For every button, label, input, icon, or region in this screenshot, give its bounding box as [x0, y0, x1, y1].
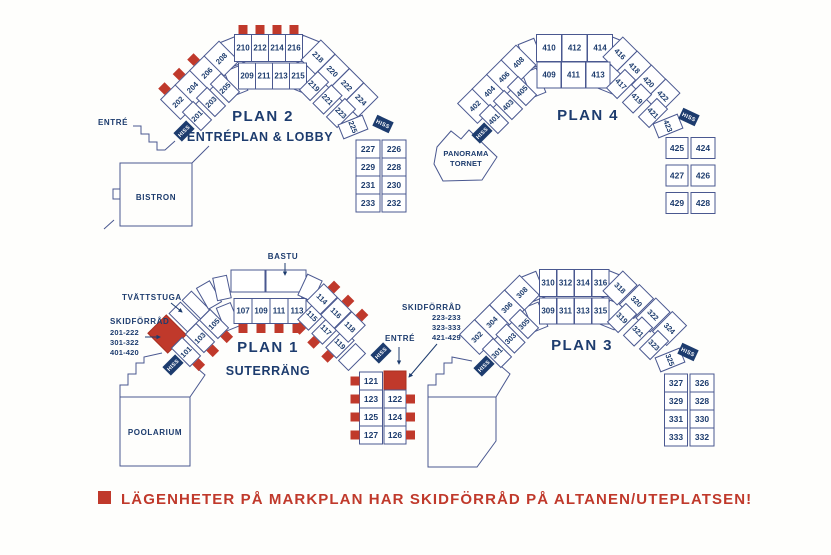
- room-429: 429: [666, 193, 688, 214]
- room-number: 226: [387, 144, 401, 154]
- room-number: 126: [388, 430, 402, 440]
- room-number: 411: [567, 71, 580, 80]
- room-211: 211: [256, 63, 273, 89]
- ski-storage-marker: [406, 413, 415, 422]
- skidforrad-right-range1: 223-233: [432, 313, 461, 322]
- room-number: 309: [541, 307, 555, 316]
- corridor-segment: [231, 270, 265, 292]
- room-number: 310: [541, 279, 555, 288]
- room-number: 330: [695, 414, 709, 424]
- room-212: 212: [252, 25, 269, 62]
- room-number: 316: [594, 279, 608, 288]
- ski-storage-marker: [239, 324, 248, 333]
- room-311: 311: [557, 298, 574, 324]
- plan1-title: PLAN 1: [237, 339, 299, 356]
- room-number: 333: [669, 432, 683, 442]
- room-121: 121: [351, 372, 383, 390]
- room-309: 309: [540, 298, 557, 324]
- bistron-label: BISTRON: [136, 193, 176, 202]
- room-number: 233: [361, 198, 375, 208]
- elevator-hiss: HISS: [679, 108, 699, 125]
- room-216: 216: [286, 25, 303, 62]
- room-312: 312: [557, 270, 574, 297]
- poolarium-label: POOLARIUM: [128, 428, 182, 437]
- room-number: 425: [670, 143, 684, 153]
- elevator-hiss: HISS: [163, 355, 183, 375]
- ski-storage-marker: [257, 324, 266, 333]
- room-number: 209: [240, 72, 254, 81]
- room-332: 332: [690, 428, 714, 446]
- room-315: 315: [592, 298, 609, 324]
- room-number: 213: [274, 72, 288, 81]
- room-425: 425: [666, 138, 688, 159]
- room-number: 426: [696, 170, 710, 180]
- room-111: 111: [270, 299, 288, 334]
- room-number: 127: [364, 430, 378, 440]
- ski-storage-marker: [239, 25, 248, 34]
- room-number: 122: [388, 394, 402, 404]
- plan2-entre-label: ENTRÉ: [98, 118, 128, 127]
- room-number: 329: [669, 396, 683, 406]
- room-313: 313: [575, 298, 592, 324]
- room-number: 232: [387, 198, 401, 208]
- corridor-segment: [266, 270, 306, 292]
- elevator-hiss: HISS: [474, 356, 494, 376]
- room-314: 314: [575, 270, 592, 297]
- elevator-hiss: HISS: [373, 115, 393, 132]
- tvattstuga-label: TVÄTTSTUGA: [122, 293, 182, 302]
- ski-storage-marker: [351, 377, 360, 386]
- plan3-rooms: 3023043063083103123143163183203223243013…: [460, 270, 714, 447]
- room-number: 412: [568, 44, 582, 53]
- ski-storage-marker: [406, 431, 415, 440]
- room-number: 414: [593, 44, 607, 53]
- room-number: 210: [236, 44, 250, 53]
- floor-plans-diagram: ENTRÉ BISTRON 20220420620821021221421621…: [0, 0, 831, 555]
- room-number: 312: [559, 279, 573, 288]
- room-number: 216: [287, 44, 301, 53]
- room-number: 413: [591, 71, 605, 80]
- skidforrad-left-label: SKIDFÖRRÅD: [110, 317, 169, 326]
- room-428: 428: [691, 193, 715, 214]
- bistron-door-notch: [104, 189, 120, 229]
- room-233: 233: [356, 194, 380, 212]
- room-number: 125: [364, 412, 378, 422]
- skidforrad-left-range2: 301-322: [110, 338, 139, 347]
- room-number: 231: [361, 180, 375, 190]
- plan1-left-steps: [120, 353, 162, 397]
- room-210: 210: [235, 25, 252, 62]
- room-number: 409: [542, 71, 556, 80]
- skidforrad-right-range2: 323-333: [432, 323, 461, 332]
- room-number: 315: [594, 307, 608, 316]
- skidforrad-left-range1: 201-222: [110, 328, 139, 337]
- room-number: 111: [273, 307, 286, 316]
- plan1-right-wall: [190, 368, 205, 397]
- room-126: 126: [384, 426, 415, 444]
- room-number: 113: [291, 307, 304, 316]
- plan2-entrance-steps: [133, 126, 175, 150]
- room-326: 326: [690, 374, 714, 392]
- room-number: 429: [670, 198, 684, 208]
- panorama-label-line1: PANORAMA: [443, 149, 489, 158]
- room-226: 226: [382, 140, 406, 158]
- room-109: 109: [252, 299, 270, 334]
- room-427: 427: [666, 165, 688, 186]
- plan3-left-steps: [428, 357, 472, 397]
- room-number: 214: [270, 44, 284, 53]
- room-232: 232: [382, 194, 406, 212]
- room-125: 125: [351, 408, 383, 426]
- room-number: 123: [364, 394, 378, 404]
- plan4: PANORAMA TORNET 402404406408410412414416…: [434, 35, 715, 214]
- room-number: 311: [559, 307, 572, 316]
- room-122: 122: [384, 390, 415, 408]
- room-number: 121: [364, 376, 378, 386]
- plan3-right-wall: [496, 367, 510, 397]
- room-214: 214: [269, 25, 286, 62]
- elevator-hiss: HISS: [472, 123, 492, 143]
- room-number: 215: [291, 72, 305, 81]
- plan1-subtitle: SUTERRÄNG: [226, 363, 311, 378]
- room-number: 229: [361, 162, 375, 172]
- room-number: 326: [695, 378, 709, 388]
- ski-storage-marker: [275, 324, 284, 333]
- plan4-rooms: 4024044064084104124144164184204224014034…: [458, 35, 715, 214]
- ski-storage-marker: [351, 431, 360, 440]
- room-228: 228: [382, 158, 406, 176]
- ski-storage-marker: [256, 25, 265, 34]
- room-107: 107: [234, 299, 252, 334]
- ski-storage-marker: [351, 413, 360, 422]
- room-229: 229: [356, 158, 380, 176]
- legend: LÄGENHETER PÅ MARKPLAN HAR SKIDFÖRRÅD PÅ…: [98, 491, 752, 508]
- skidforrad-right-arrow: [409, 344, 437, 377]
- room-231: 231: [356, 176, 380, 194]
- skidforrad-right-range3: 421-429: [432, 333, 461, 342]
- room-329: 329: [665, 392, 688, 410]
- room-number: 327: [669, 378, 683, 388]
- room-number: 331: [669, 414, 683, 424]
- room-number: 328: [695, 396, 709, 406]
- room-333: 333: [665, 428, 688, 446]
- room-412: 412: [562, 35, 587, 62]
- plan3-title: PLAN 3: [551, 337, 613, 354]
- room-330: 330: [690, 410, 714, 428]
- room-number: 227: [361, 144, 375, 154]
- ski-storage-marker: [406, 395, 415, 404]
- ski-storage-marker: [273, 25, 282, 34]
- room-413: 413: [586, 62, 610, 88]
- room-number: 212: [253, 44, 267, 53]
- room-number: 107: [236, 307, 250, 316]
- bastu-label: BASTU: [268, 252, 299, 261]
- plan1-rooms: 1011031051071091111131151171191141161181…: [163, 270, 415, 444]
- room-number: 211: [258, 72, 271, 81]
- room-426: 426: [691, 165, 715, 186]
- room-number: 427: [670, 170, 684, 180]
- room-410: 410: [537, 35, 562, 62]
- plan1: POOLARIUM 101103105107109111113115117119…: [110, 252, 461, 466]
- ski-storage-marker: [351, 395, 360, 404]
- skidforrad-right-label: SKIDFÖRRÅD: [402, 303, 461, 312]
- room-number: 124: [388, 412, 402, 422]
- room-number: 314: [576, 279, 590, 288]
- plan3-lower-building: [428, 397, 496, 467]
- room-number: 230: [387, 180, 401, 190]
- plan3: 3023043063083103123143163183203223243013…: [428, 270, 714, 468]
- room-number: 313: [576, 307, 590, 316]
- plan4-title: PLAN 4: [557, 107, 619, 124]
- room-number: 410: [542, 44, 556, 53]
- room-number: 428: [696, 198, 710, 208]
- room-424: 424: [691, 138, 715, 159]
- skidforrad-left-range3: 401-420: [110, 348, 139, 357]
- ski-storage-marker: [290, 25, 299, 34]
- room-209: 209: [239, 63, 256, 89]
- legend-marker: [98, 491, 111, 504]
- plan1-entre-label: ENTRÉ: [385, 334, 415, 343]
- legend-text: LÄGENHETER PÅ MARKPLAN HAR SKIDFÖRRÅD PÅ…: [121, 491, 752, 508]
- room-number: 228: [387, 162, 401, 172]
- room-328: 328: [690, 392, 714, 410]
- room-331: 331: [665, 410, 688, 428]
- room-409: 409: [537, 62, 561, 88]
- elevator-hiss: HISS: [371, 343, 391, 363]
- room-123: 123: [351, 390, 383, 408]
- room-127: 127: [351, 426, 383, 444]
- room-310: 310: [540, 270, 557, 297]
- room-number: 424: [696, 143, 710, 153]
- plan2-title: PLAN 2: [232, 108, 294, 125]
- plan2: ENTRÉ BISTRON 20220420620821021221421621…: [98, 25, 406, 229]
- room-411: 411: [562, 62, 586, 88]
- ski-storage-block-right: [384, 371, 406, 390]
- room-327: 327: [665, 374, 688, 392]
- panorama-label-line2: TORNET: [450, 159, 482, 168]
- room-230: 230: [382, 176, 406, 194]
- plan2-lobby-wall: [192, 146, 209, 163]
- room-number: 332: [695, 432, 709, 442]
- room-number: 109: [254, 307, 268, 316]
- room-213: 213: [273, 63, 290, 89]
- room-124: 124: [384, 408, 415, 426]
- plan2-subtitle: ENTRÉPLAN & LOBBY: [187, 129, 333, 144]
- room-227: 227: [356, 140, 380, 158]
